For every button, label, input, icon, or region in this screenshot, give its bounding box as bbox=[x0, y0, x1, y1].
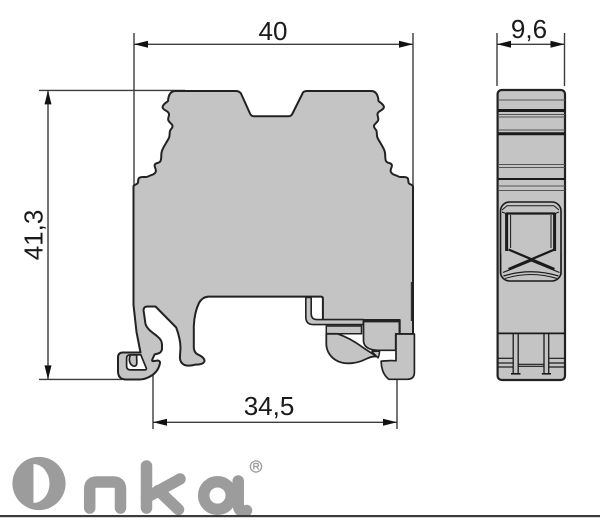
svg-text:41,3: 41,3 bbox=[19, 210, 49, 261]
svg-text:9,6: 9,6 bbox=[511, 14, 547, 44]
svg-text:34,5: 34,5 bbox=[244, 391, 295, 421]
svg-text:40: 40 bbox=[259, 16, 288, 46]
